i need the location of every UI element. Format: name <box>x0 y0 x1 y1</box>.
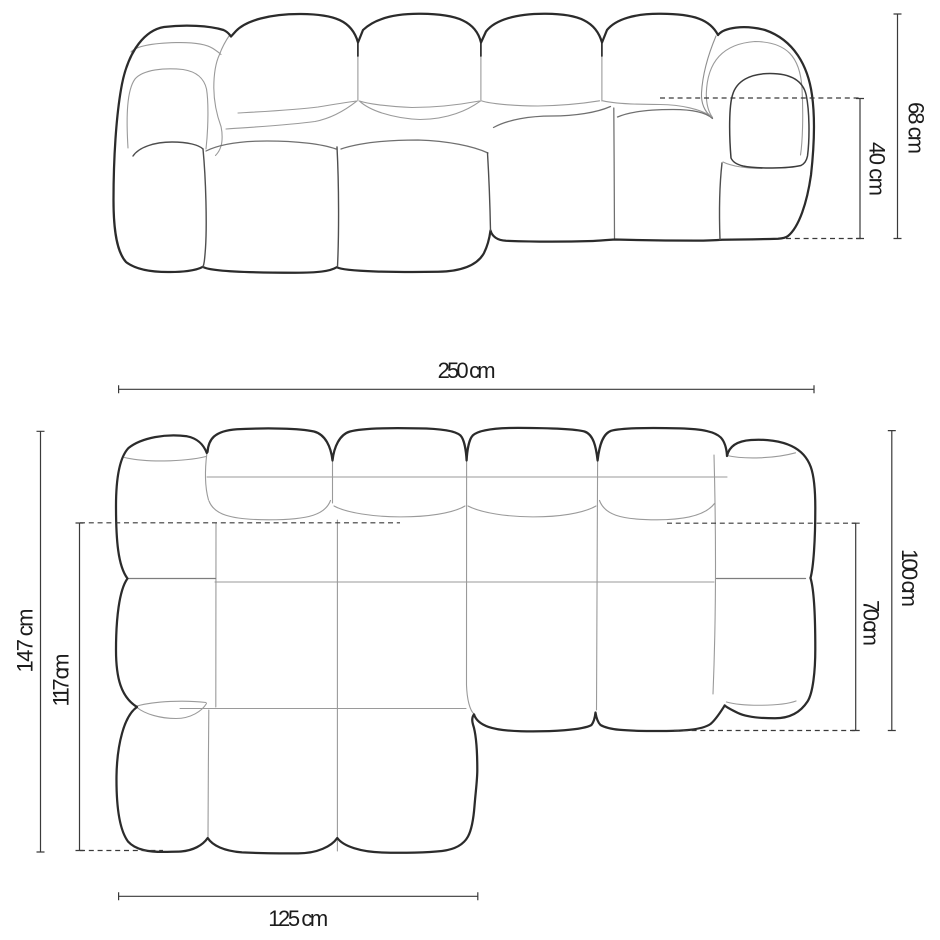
svg-text:117 cm: 117 cm <box>49 654 74 707</box>
svg-text:250 cm: 250 cm <box>438 358 496 383</box>
svg-text:70 cm: 70 cm <box>859 600 884 646</box>
svg-text:147 cm: 147 cm <box>13 609 38 673</box>
svg-text:100 cm: 100 cm <box>897 549 922 607</box>
svg-text:125 cm: 125 cm <box>268 906 328 931</box>
svg-text:40 cm: 40 cm <box>865 142 890 196</box>
svg-text:68 cm: 68 cm <box>904 102 929 154</box>
